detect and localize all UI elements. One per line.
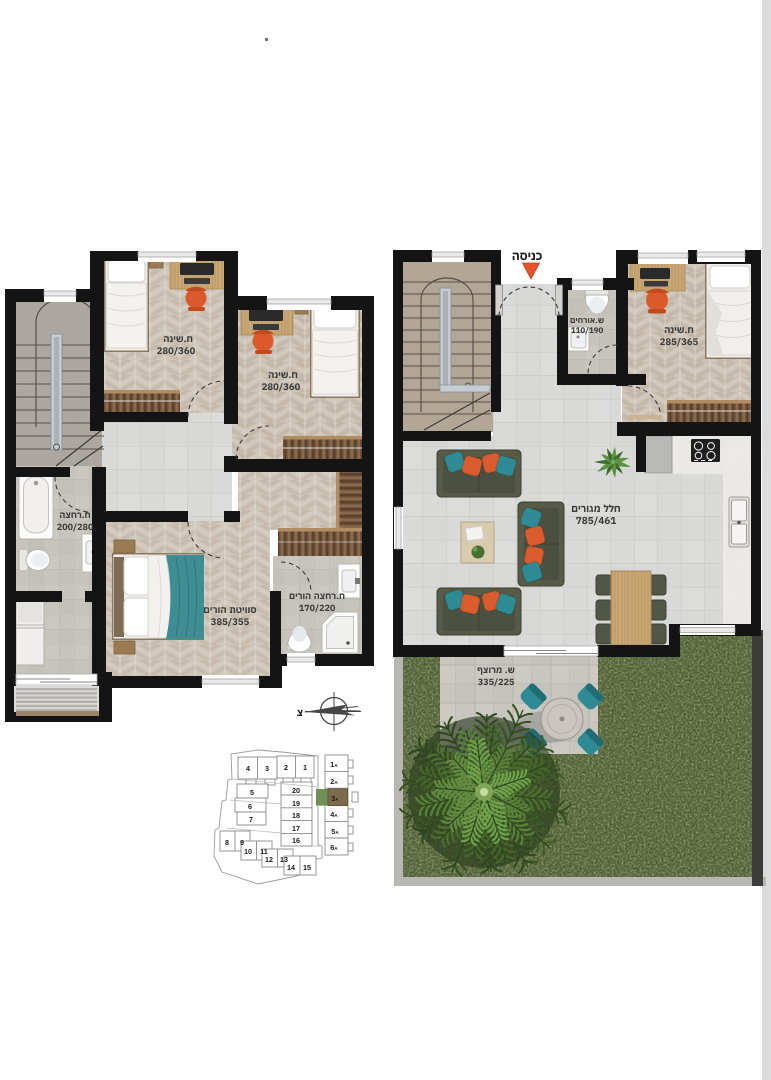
svg-text:2: 2	[284, 763, 288, 772]
svg-text:9: 9	[240, 838, 244, 847]
svg-text:3: 3	[265, 764, 269, 773]
svg-text:4: 4	[246, 764, 250, 773]
svg-text:1: 1	[303, 763, 307, 772]
svg-text:8: 8	[225, 838, 229, 847]
svg-text:15: 15	[303, 863, 311, 872]
svg-text:19: 19	[292, 799, 300, 808]
svg-text:7: 7	[249, 815, 253, 824]
svg-text:16: 16	[292, 836, 300, 845]
svg-text:14: 14	[287, 863, 295, 872]
svg-text:17: 17	[292, 824, 300, 833]
svg-text:5: 5	[250, 788, 254, 797]
svg-text:18: 18	[292, 811, 300, 820]
svg-text:6: 6	[248, 802, 252, 811]
svg-text:10: 10	[244, 847, 252, 856]
svg-text:20: 20	[292, 786, 300, 795]
svg-text:12: 12	[265, 855, 273, 864]
